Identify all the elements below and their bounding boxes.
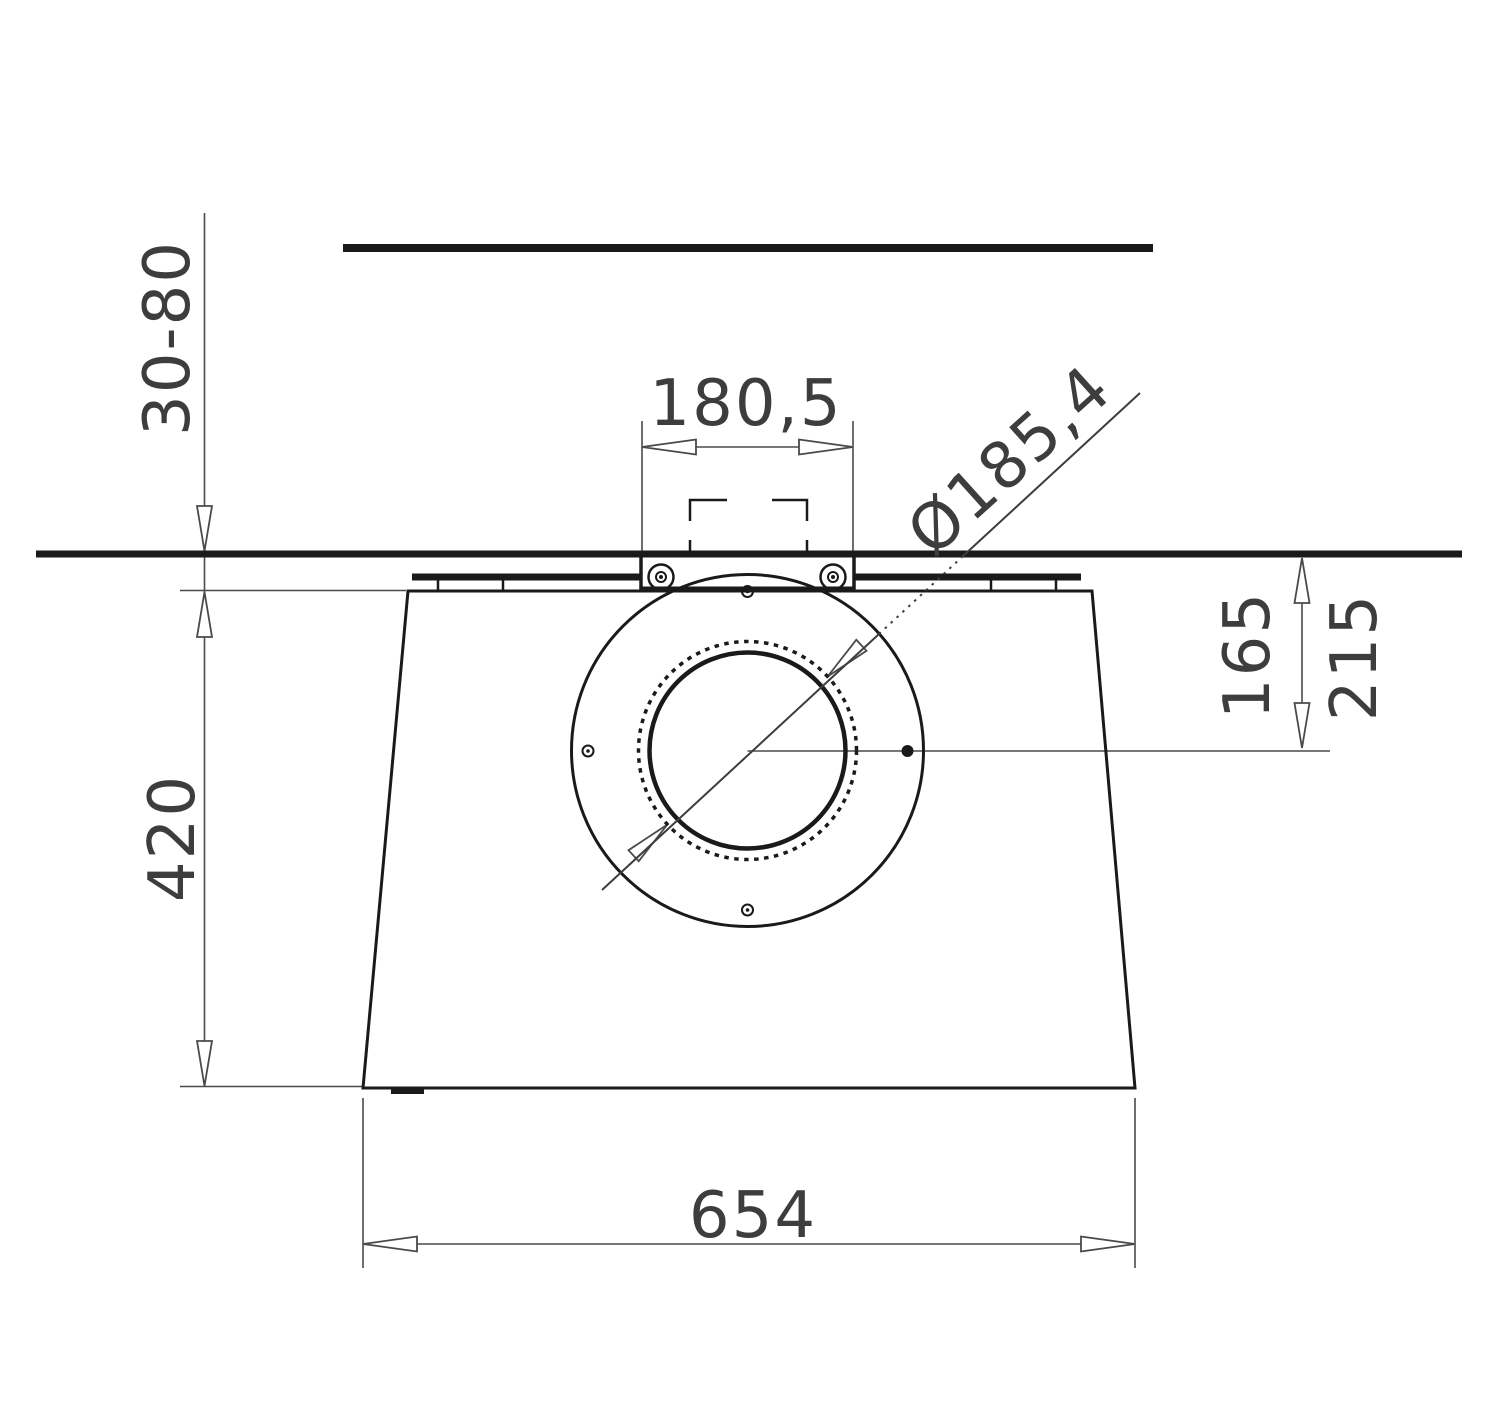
dimension-labels: 30-80 420 180,5 Ø185,4 165 215 654 <box>131 240 1392 1253</box>
arrow-diameter-upper <box>828 640 867 677</box>
arrow-left-654 <box>363 1237 417 1252</box>
diameter-leader <box>602 393 1140 890</box>
bolt-hole-top-center <box>746 590 750 594</box>
label-offset-215: 215 <box>1318 593 1392 721</box>
arrow-down-420 <box>197 1041 212 1086</box>
label-cutout-width: 180,5 <box>649 367 842 441</box>
bolt-hole-bottom-center <box>746 908 750 912</box>
installation-diagram: 30-80 420 180,5 Ø185,4 165 215 654 <box>0 0 1500 1427</box>
bolt-hole-right <box>902 745 914 757</box>
label-ceiling-gap: 30-80 <box>131 240 205 436</box>
arrow-right-654 <box>1081 1237 1135 1252</box>
label-hole-diameter: Ø185,4 <box>894 351 1126 570</box>
screw-right-center <box>831 575 835 579</box>
arrow-diameter-lower <box>629 825 668 862</box>
arrow-up-420 <box>197 592 212 637</box>
label-body-width: 654 <box>689 1179 817 1253</box>
arrow-right-1805 <box>799 440 853 455</box>
label-offset-165: 165 <box>1211 591 1285 719</box>
leader-segment-lower <box>602 634 879 890</box>
arrow-left-1805 <box>642 440 696 455</box>
screw-left-center <box>659 575 663 579</box>
hood-body-outline <box>363 591 1135 1088</box>
arrowheads <box>197 440 1310 1252</box>
duct-dashed-outline <box>690 500 807 552</box>
bolt-hole-left-center <box>586 749 590 753</box>
technical-drawing-canvas: 30-80 420 180,5 Ø185,4 165 215 654 <box>0 0 1500 1427</box>
arrow-up-165 <box>1295 558 1310 603</box>
arrow-down-ceiling <box>197 506 212 551</box>
leader-segment-hidden <box>879 557 962 634</box>
label-body-height: 420 <box>136 774 210 902</box>
arrow-down-165 <box>1295 703 1310 748</box>
